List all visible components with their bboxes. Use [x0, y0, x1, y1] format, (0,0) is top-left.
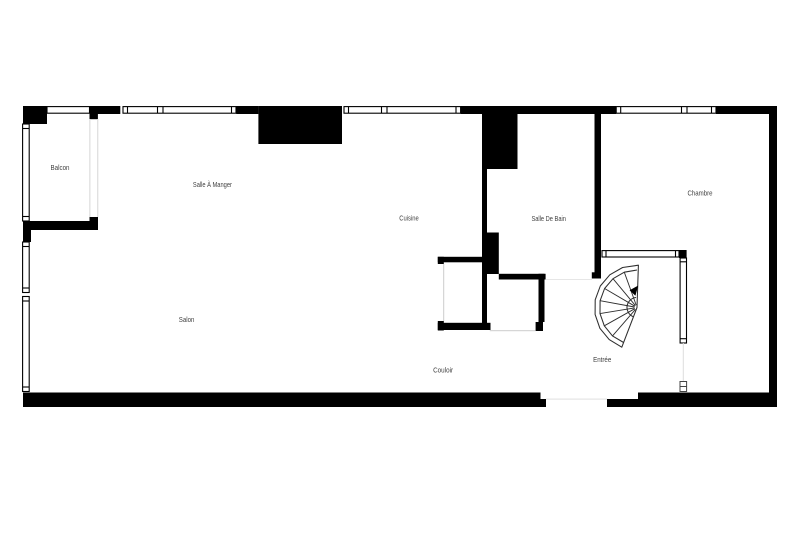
svg-text:Salon: Salon	[179, 315, 195, 324]
svg-text:Chambre: Chambre	[688, 189, 713, 198]
svg-text:Cuisine: Cuisine	[399, 213, 419, 222]
svg-text:Couloir: Couloir	[433, 366, 454, 375]
svg-text:Entrée: Entrée	[593, 355, 611, 364]
svg-text:Salle À Manger: Salle À Manger	[193, 180, 232, 189]
svg-text:Salle De Bain: Salle De Bain	[531, 214, 566, 223]
svg-text:Balcon: Balcon	[51, 163, 70, 172]
